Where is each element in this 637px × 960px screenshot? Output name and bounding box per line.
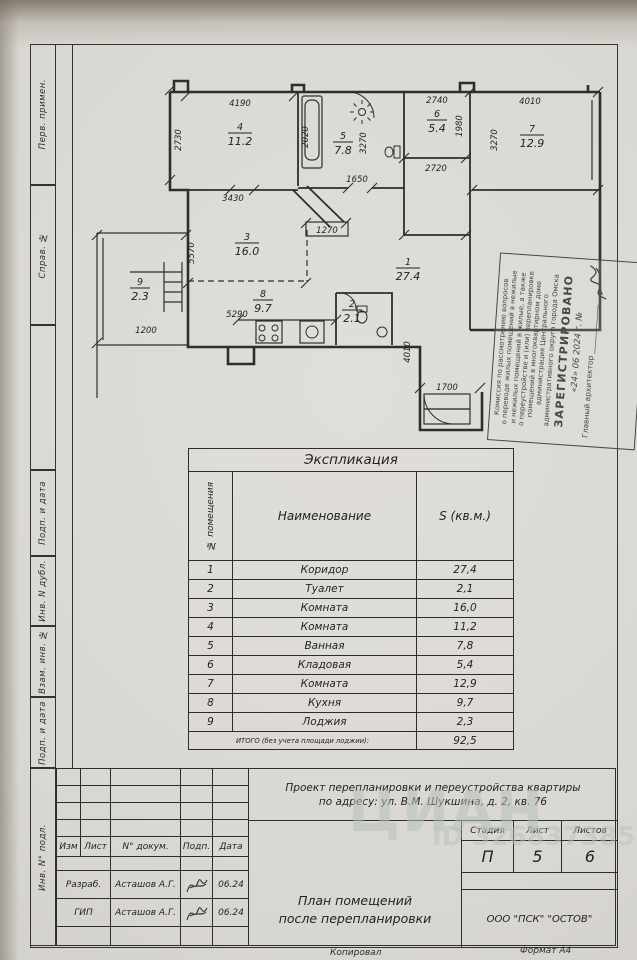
table-row: 5 Ванная 7,8 <box>189 636 513 655</box>
gip-row: ГИП Асташов А.Г. 06.24 <box>57 899 248 927</box>
organization-name: ООО "ПСК" "ОСТОВ" <box>461 873 617 947</box>
dimension-labels: 4190 2020 2730 3430 1650 2740 1980 2720 … <box>135 96 541 393</box>
table-row: 8 Кухня 9,7 <box>189 693 513 712</box>
dim-label: 2740 <box>426 96 448 106</box>
svg-text:5.4: 5.4 <box>428 122 446 135</box>
room-label-7: 7 12.9 <box>520 124 545 150</box>
margin-label: Подп. и дата <box>38 481 48 545</box>
person-name: Асташов А.Г. <box>111 899 181 926</box>
table-row: 1 Коридор 27,4 <box>189 560 513 579</box>
room-label-6: 6 5.4 <box>427 109 447 135</box>
role-label: ГИП <box>57 899 111 926</box>
room-label-1: 1 27.4 <box>396 257 421 283</box>
svg-text:7.8: 7.8 <box>334 144 352 157</box>
signature-cell <box>181 899 213 926</box>
dim-label: 3270 <box>490 129 500 151</box>
table-row: 3 Комната 16,0 <box>189 598 513 617</box>
paper-sheet: Перв. примен. Справ. № Подп. и дата Инв.… <box>0 0 637 960</box>
dim-label: 1200 <box>135 326 157 336</box>
col-header-room-number: № помещения <box>189 472 233 560</box>
margin-box-inv-dubl: Инв. N дубл. <box>30 556 56 626</box>
room-label-2: 2 2.1 <box>342 299 362 325</box>
total-label: ИТОГО (без учета площади лоджии): <box>189 732 417 749</box>
dim-label: 2720 <box>425 164 447 174</box>
stamp-signature <box>582 261 615 303</box>
svg-text:9: 9 <box>137 277 143 288</box>
sheet-value: 5 <box>514 841 562 872</box>
project-title: Проект перепланировки и переустройства к… <box>249 769 617 821</box>
format-label: Формат А4 <box>520 946 571 956</box>
dim-label: 2020 <box>301 126 311 148</box>
stage-value: П <box>462 841 514 872</box>
room-label-3: 3 16.0 <box>235 232 260 258</box>
explication-header: № помещения Наименование S (кв.м.) <box>189 472 513 560</box>
explication-title: Экспликация <box>189 449 513 472</box>
title-block: Изм Лист N° докум. Подп. Дата Разраб. Ас… <box>56 768 616 946</box>
total-value: 92,5 <box>417 732 513 749</box>
svg-text:2.1: 2.1 <box>343 312 361 325</box>
svg-text:12.9: 12.9 <box>520 137 545 150</box>
dim-label: 3430 <box>222 194 244 204</box>
person-name: Асташов А.Г. <box>111 871 181 898</box>
registration-stamp: Комиссия по рассмотрению вопросов о пере… <box>487 252 637 450</box>
room-label-8: 8 9.7 <box>253 289 273 315</box>
dim-label: 4010 <box>403 341 413 363</box>
svg-text:27.4: 27.4 <box>396 270 421 283</box>
margin-label: Инв. N дубл. <box>38 560 48 622</box>
kopiroval-label: Копировал <box>330 948 381 958</box>
svg-text:8: 8 <box>260 289 266 300</box>
table-row: 7 Комната 12,9 <box>189 674 513 693</box>
revision-header-row: Изм Лист N° докум. Подп. Дата <box>57 837 248 857</box>
col-header-name: Наименование <box>233 472 417 560</box>
dim-label: 2730 <box>174 129 184 151</box>
developer-row: Разраб. Асташов А.Г. 06.24 <box>57 871 248 899</box>
svg-text:7: 7 <box>529 124 535 135</box>
room-label-5: 5 7.8 <box>333 131 353 157</box>
svg-text:3: 3 <box>244 232 250 243</box>
col-header-area: S (кв.м.) <box>417 472 513 560</box>
dim-label: 1270 <box>316 226 338 236</box>
signature-cell <box>181 871 213 898</box>
dim-label: 3270 <box>359 132 369 154</box>
date-cell: 06.24 <box>213 899 249 926</box>
margin-label: Инв. N° подл. <box>38 824 48 891</box>
sheets-label: Листов <box>562 821 618 840</box>
date-cell: 06.24 <box>213 871 249 898</box>
dim-label: 1650 <box>346 175 368 185</box>
dim-label: 1980 <box>455 115 465 137</box>
role-label: Разраб. <box>57 871 111 898</box>
margin-box-podp-data-2: Подп. и дата <box>30 697 56 768</box>
table-row: 9 Лоджия 2,3 <box>189 712 513 731</box>
svg-text:9.7: 9.7 <box>254 302 272 315</box>
drawing-title: План помещений после перепланировки <box>249 873 461 947</box>
svg-text:6: 6 <box>434 109 440 120</box>
svg-text:1: 1 <box>405 257 411 268</box>
stage-sheet-table: Стадия Лист Листов П 5 6 <box>461 821 617 873</box>
table-total-row: ИТОГО (без учета площади лоджии): 92,5 <box>189 731 513 749</box>
table-row: 6 Кладовая 5,4 <box>189 655 513 674</box>
margin-box-inv-podl: Инв. N° подл. <box>30 768 56 946</box>
svg-text:2: 2 <box>349 299 355 310</box>
title-block-left-grid: Изм Лист N° докум. Подп. Дата Разраб. Ас… <box>57 769 249 945</box>
dim-label: 4010 <box>519 97 541 107</box>
dim-label: 4190 <box>229 99 251 109</box>
sheets-value: 6 <box>562 841 618 872</box>
table-row: 2 Туалет 2,1 <box>189 579 513 598</box>
fixtures <box>259 92 454 424</box>
dim-label: 1700 <box>436 383 458 393</box>
room-label-9: 9 2.3 <box>130 277 150 303</box>
svg-text:11.2: 11.2 <box>228 135 253 148</box>
room-label-4: 4 11.2 <box>228 122 253 148</box>
dim-label: 5290 <box>226 310 248 320</box>
explication-table: Экспликация № помещения Наименование S (… <box>188 448 514 750</box>
margin-box-podp-data-1: Подп. и дата <box>30 470 56 556</box>
stage-label: Стадия <box>462 821 514 840</box>
svg-text:4: 4 <box>237 122 243 133</box>
sheet-label: Лист <box>514 821 562 840</box>
svg-text:16.0: 16.0 <box>235 245 260 258</box>
dim-label: 5570 <box>187 242 197 264</box>
margin-label: Взам. инв. № <box>38 629 48 694</box>
svg-text:5: 5 <box>340 131 346 142</box>
table-row: 4 Комната 11,2 <box>189 617 513 636</box>
margin-box-vzam-inv: Взам. инв. № <box>30 626 56 697</box>
margin-label: Подп. и дата <box>38 701 48 765</box>
svg-text:2.3: 2.3 <box>131 290 149 303</box>
